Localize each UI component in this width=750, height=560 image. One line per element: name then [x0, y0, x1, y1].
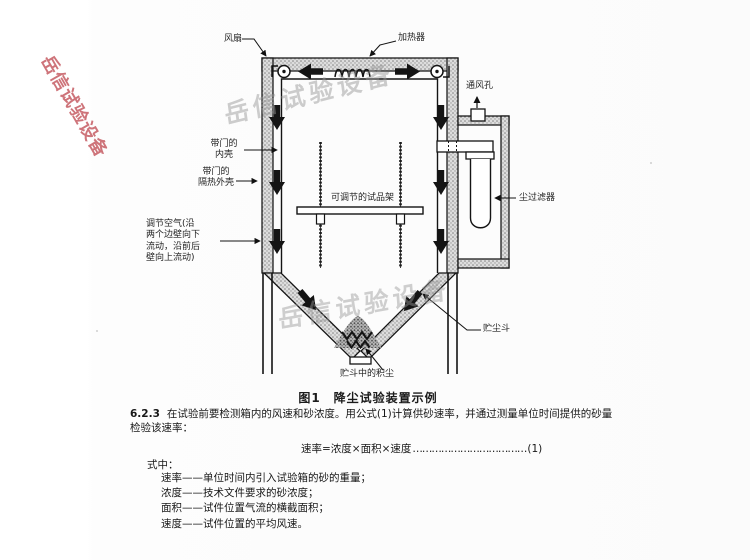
definition-item: 速度——试件位置的平均风速。: [161, 517, 371, 532]
definition-item: 浓度——技术文件要求的砂浓度；: [161, 486, 371, 501]
outer-shell-label: 带门的 隔热外壳: [194, 167, 238, 190]
vent-label: 通风孔: [466, 81, 493, 92]
formula-dot-leader: ………………………………: [412, 443, 526, 455]
formula-number: (1): [527, 443, 542, 455]
inner-shell-outline: [282, 79, 438, 273]
formula-line: 速率=浓度×面积×速度………………………………(1): [301, 441, 542, 456]
inner-shell-label: 带门的 内壳: [204, 139, 244, 162]
dust-in-hopper-label: 贮斗中的积尘: [340, 369, 394, 380]
figure-line-art: [0, 0, 750, 560]
heater-label: 加热器: [398, 33, 425, 44]
airflow-arrows: [269, 64, 449, 317]
clause-text: 在试验前要检测箱内的风速和砂浓度。用公式(1)计算供砂速率，并通过测量单位时间提…: [130, 408, 612, 434]
vent-opening: [471, 109, 485, 121]
scanned-document-page: 风扇 加热器 通风孔 带门的 内壳 带门的 隔热外壳 调节空气(沿 两个边壁向下…: [0, 0, 750, 560]
where-label: 式中：: [147, 457, 179, 472]
definition-item: 面积——试件位置气流的横截面积；: [161, 501, 371, 516]
formula-expression: 速率=浓度×面积×速度: [301, 443, 411, 455]
definition-list: 速率——单位时间内引入试验箱的砂的重量； 浓度——技术文件要求的砂浓度； 面积—…: [161, 471, 371, 532]
scan-speck: [650, 162, 652, 164]
fan-label: 风扇: [224, 34, 242, 45]
conditioning-air-label: 调节空气(沿 两个边壁向下 流动，沿前后 壁向上流动): [146, 219, 220, 264]
definition-item: 速率——单位时间内引入试验箱的砂的重量；: [161, 471, 371, 486]
rack-label: 可调节的试品架: [331, 193, 394, 204]
clause-number: 6.2.3: [130, 408, 160, 420]
hopper-label: 贮尘斗: [483, 324, 510, 335]
clause-paragraph: 6.2.3在试验前要检测箱内的风速和砂浓度。用公式(1)计算供砂速率，并通过测量…: [130, 408, 620, 436]
specimen-rack: [297, 142, 423, 268]
scan-speck: [96, 330, 98, 332]
funnel-outlet: [350, 357, 371, 364]
filter-label: 尘过滤器: [519, 193, 555, 204]
figure-caption: 图1 降尘试验装置示例: [252, 389, 484, 406]
